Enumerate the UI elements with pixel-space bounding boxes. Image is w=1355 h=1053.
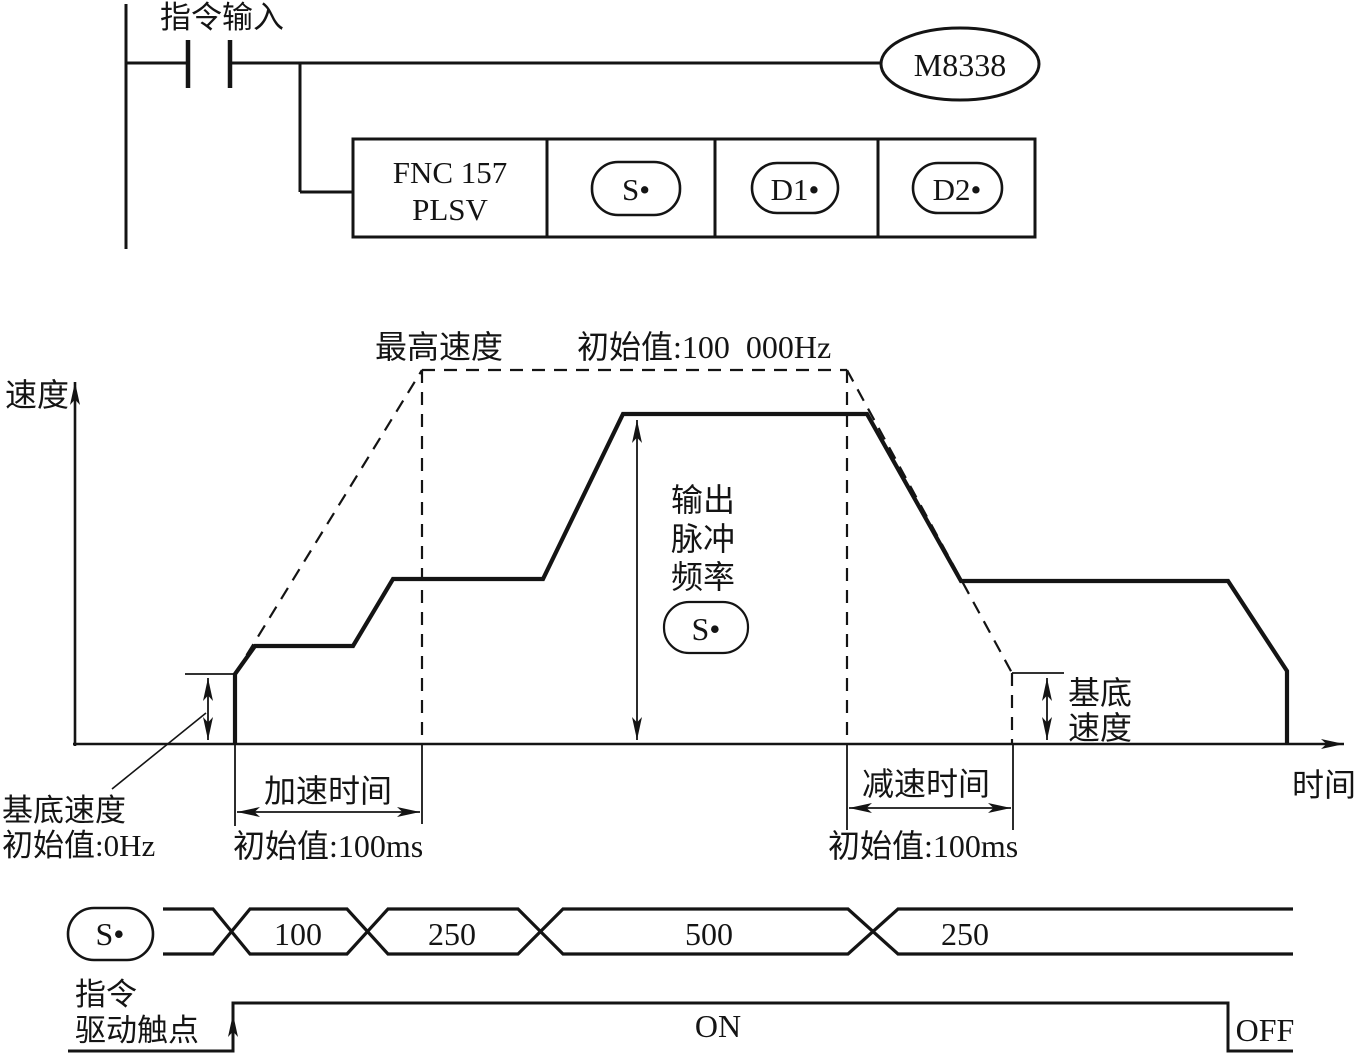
bus-value-2: 250 (428, 916, 476, 952)
base-speed-right-label-line2: 速度 (1068, 710, 1132, 746)
contact-label-line1: 指令 (75, 977, 137, 1012)
operand-d2-label: D2• (933, 172, 982, 207)
on-label: ON (695, 1008, 741, 1044)
contact-label-line2: 驱动触点 (75, 1013, 199, 1048)
chart-operand-s-label: S• (692, 611, 721, 647)
decel-initial-label: 初始值:100ms (828, 828, 1018, 864)
accel-initial-label: 初始值:100ms (233, 828, 423, 864)
operand-d1-label: D1• (771, 172, 820, 207)
output-pulse-label-line2: 脉冲 (671, 521, 735, 557)
decel-time-label: 减速时间 (862, 766, 990, 802)
bus-value-3: 500 (685, 916, 733, 952)
timing-diagram: S• 100 250 500 250 指令 驱动触点 ON OFF (68, 908, 1294, 1051)
y-axis-label: 速度 (5, 377, 69, 413)
base-speed-callout-line2: 初始值:0Hz (2, 828, 155, 863)
timing-operand-s-label: S• (96, 916, 125, 952)
speed-profile-chart: 速度 时间 最高速度 初始值:100 000Hz 输出 脉冲 频率 S• 基底 … (2, 329, 1355, 864)
instruction-name-line1: FNC 157 (393, 155, 508, 190)
base-speed-right-label-line1: 基底 (1068, 675, 1132, 711)
output-pulse-label-line3: 频率 (671, 559, 735, 595)
x-axis-label: 时间 (1292, 767, 1355, 803)
coil-label: M8338 (914, 47, 1006, 83)
max-speed-value-label: 初始值:100 000Hz (577, 329, 831, 365)
instruction-input-label: 指令输入 (160, 0, 284, 35)
operand-s-label: S• (622, 172, 650, 207)
off-label: OFF (1236, 1012, 1295, 1048)
base-speed-callout-line1: 基底速度 (2, 793, 126, 828)
accel-time-label: 加速时间 (264, 773, 392, 809)
drive-contact-waveform (68, 1003, 1293, 1051)
instruction-name-line2: PLSV (412, 192, 488, 227)
bus-value-1: 100 (274, 916, 322, 952)
max-speed-label: 最高速度 (375, 329, 503, 365)
accel-ideal-dashed-line (235, 370, 422, 674)
plsv-instruction-figure: 指令输入 M8338 FNC 157 PLSV S• D1• D2• 速度 时间… (0, 0, 1355, 1053)
output-pulse-label-line1: 输出 (671, 482, 735, 518)
base-speed-leader-line (112, 713, 206, 789)
ladder-diagram: 指令输入 M8338 FNC 157 PLSV S• D1• D2• (126, 0, 1039, 249)
bus-value-4: 250 (941, 916, 989, 952)
